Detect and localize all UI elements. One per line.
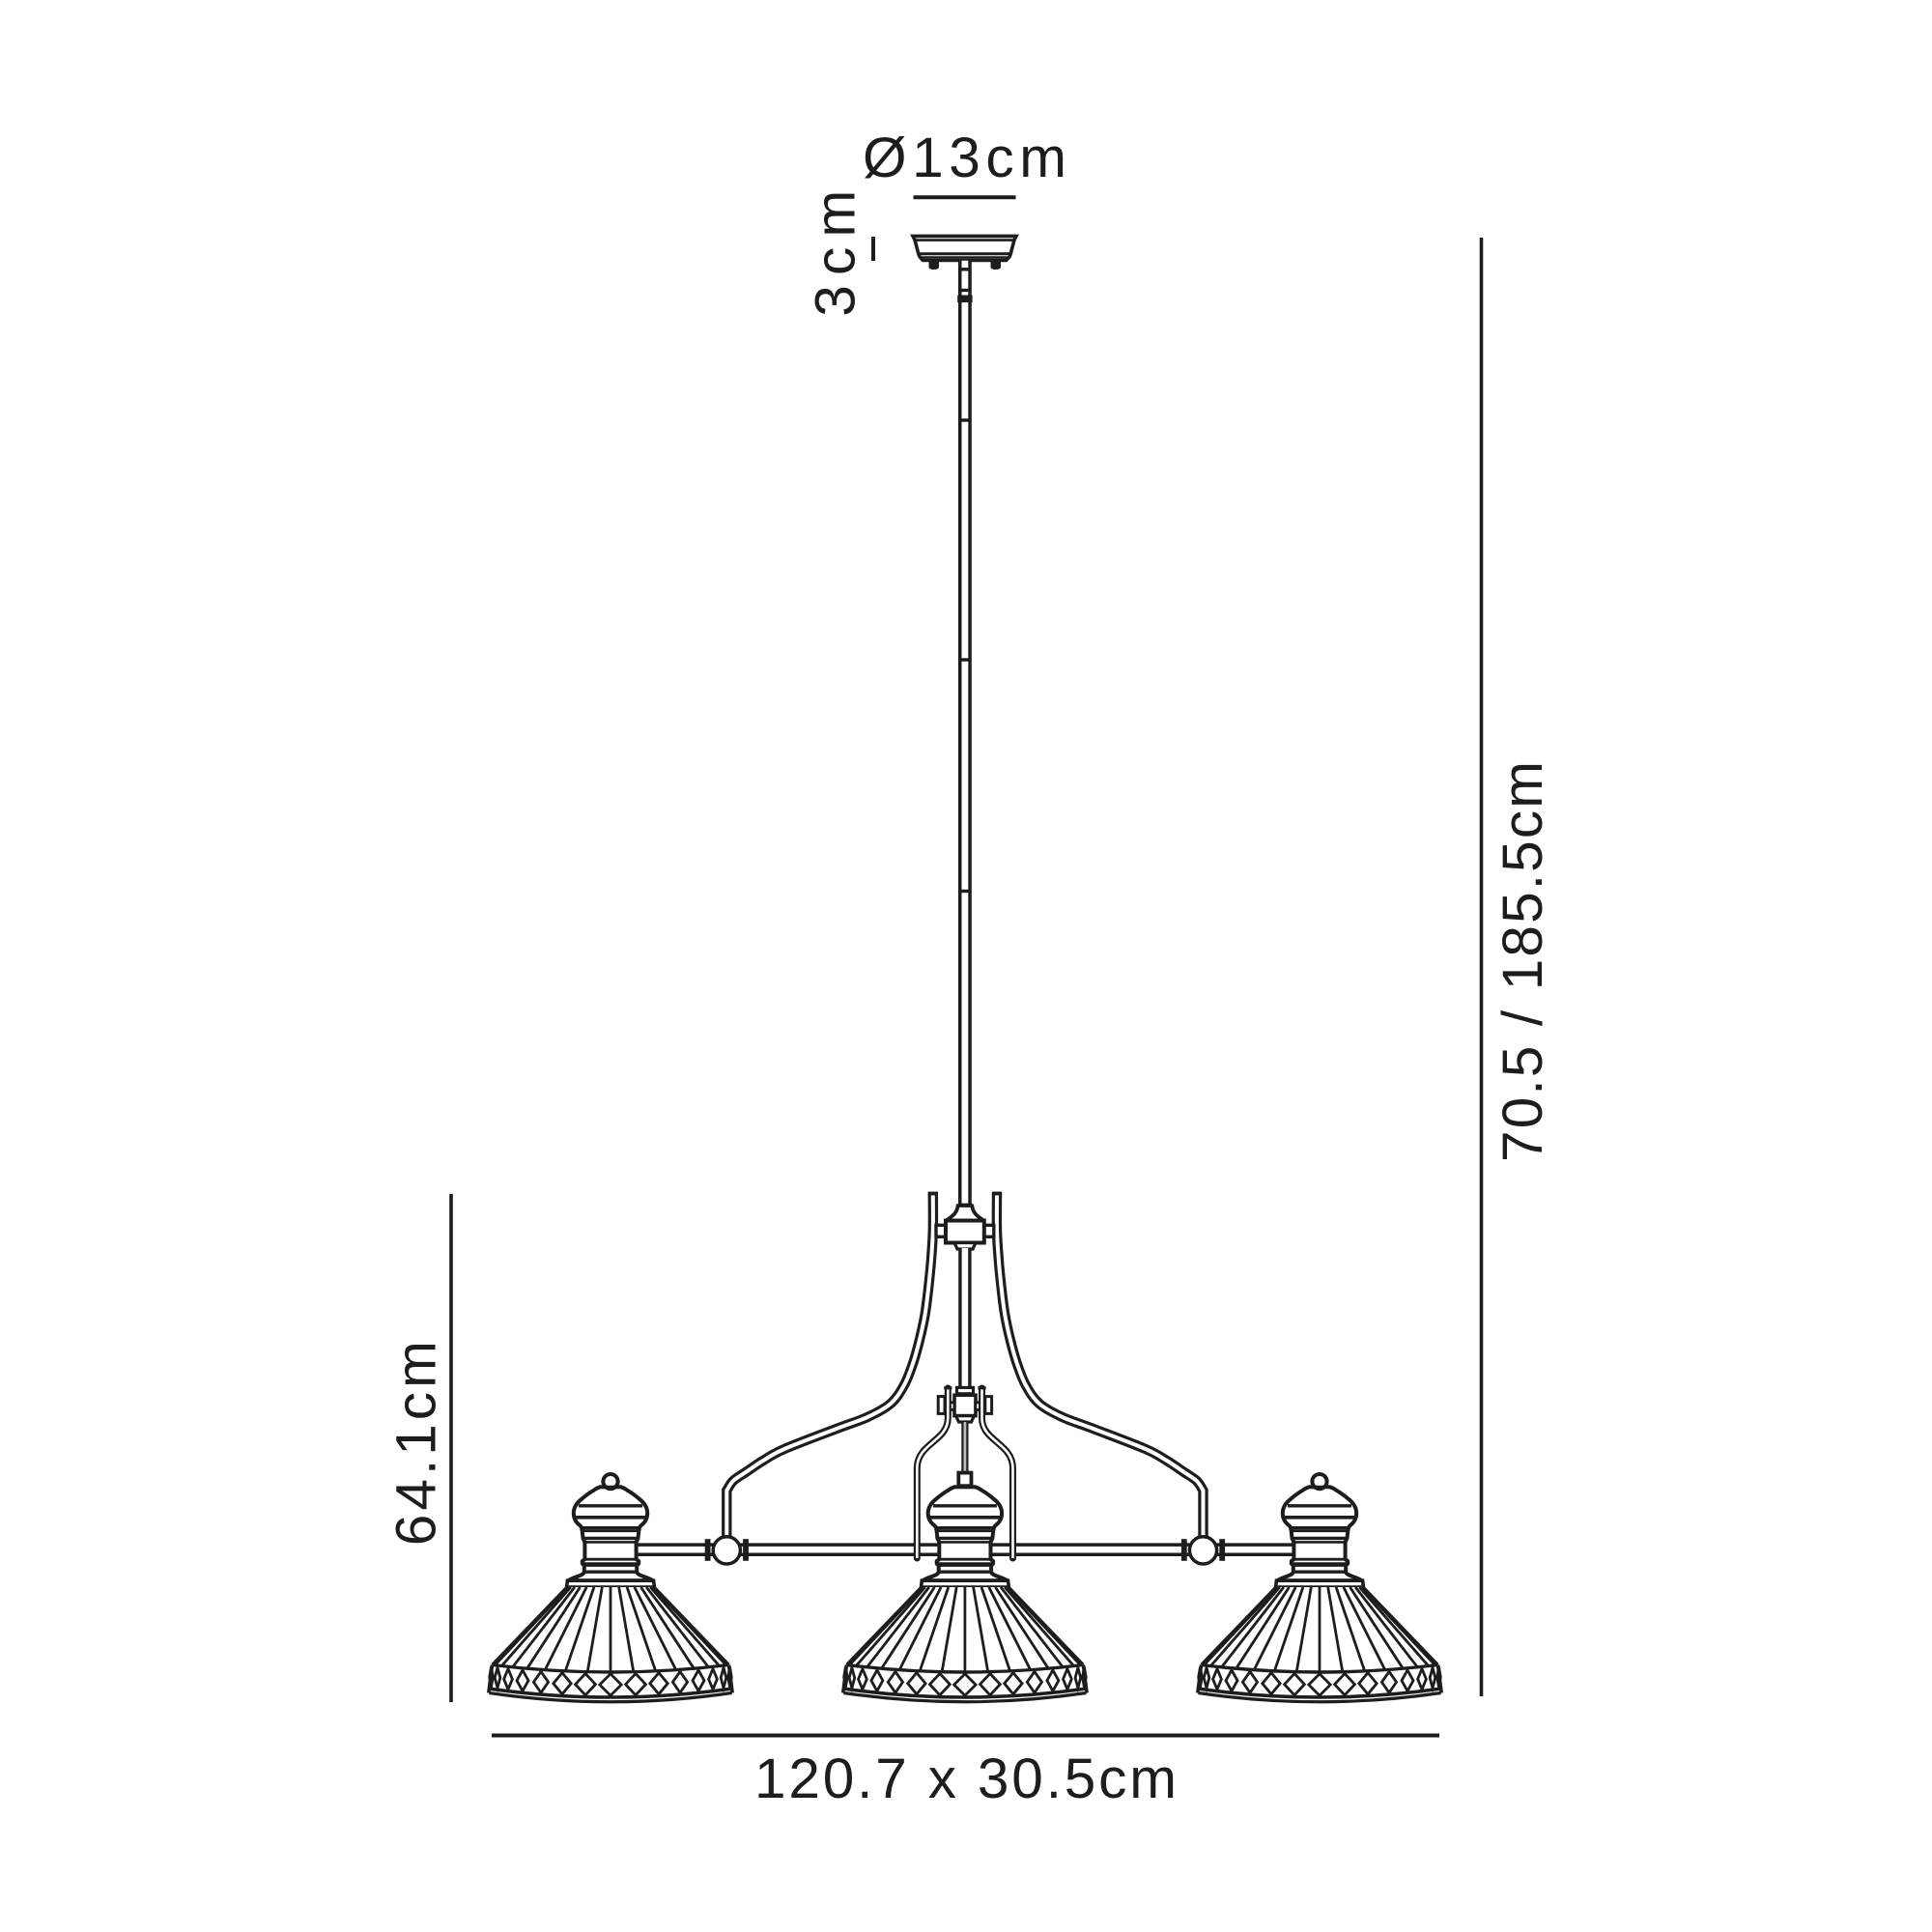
svg-text:Ø13cm: Ø13cm bbox=[863, 127, 1066, 189]
svg-text:120.7 x 30.5cm: 120.7 x 30.5cm bbox=[754, 1747, 1177, 1810]
svg-text:3cm: 3cm bbox=[805, 190, 867, 317]
svg-text:70.5 / 185.5cm: 70.5 / 185.5cm bbox=[1492, 761, 1554, 1162]
svg-text:64.1cm: 64.1cm bbox=[385, 1341, 448, 1546]
